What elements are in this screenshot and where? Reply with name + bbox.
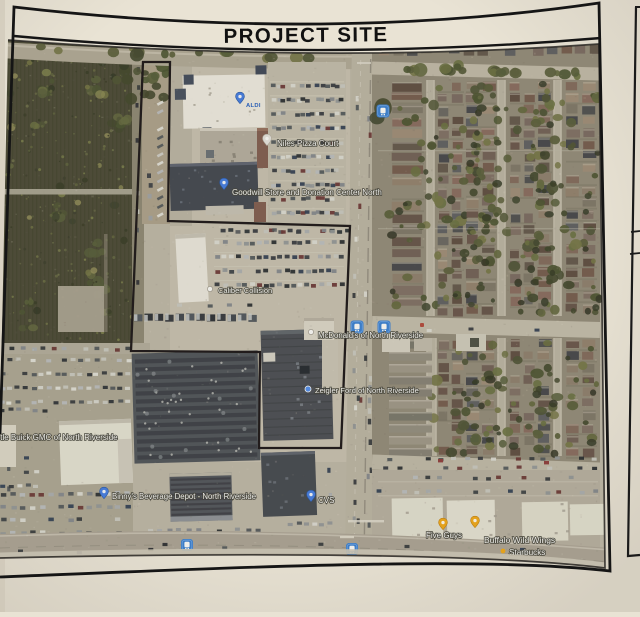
svg-text:PROJECT SITE: PROJECT SITE	[223, 23, 388, 48]
